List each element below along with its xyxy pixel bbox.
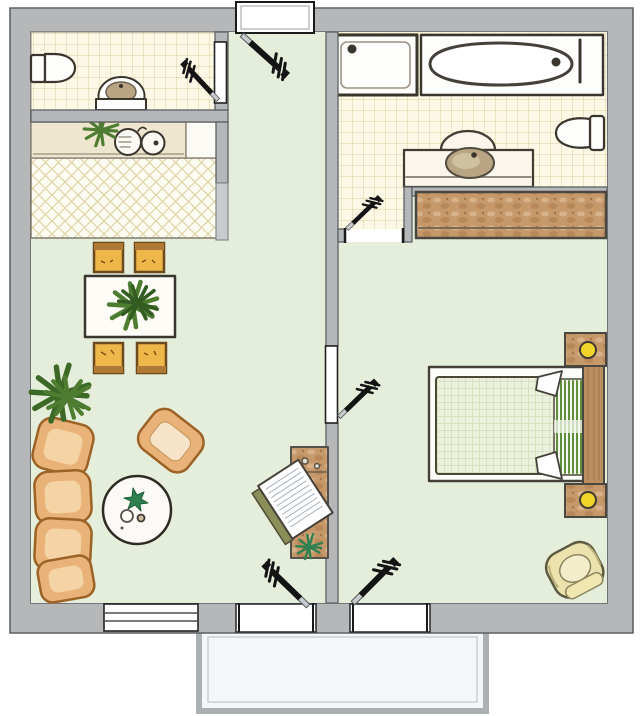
sofa-cushion	[36, 554, 96, 605]
nightstand-bottom	[565, 484, 606, 517]
wall-kitchen-right-upper	[216, 122, 228, 183]
balcony-slab	[199, 628, 486, 711]
wall-center-upper	[326, 32, 338, 346]
double-bed	[429, 364, 604, 484]
wall-kitchen-right-lower	[216, 183, 228, 240]
dining-table	[85, 276, 175, 337]
dining-chair-3	[94, 343, 123, 373]
bedroom-door-panel	[326, 346, 338, 423]
kitchen-fridge	[186, 122, 218, 158]
lamp	[580, 492, 596, 508]
window-living	[104, 604, 198, 631]
nightstand-top	[565, 333, 606, 366]
bathtub-drain	[552, 58, 561, 67]
kitchen	[31, 113, 218, 238]
cup	[121, 510, 133, 522]
dining-chair-4	[137, 343, 166, 373]
wc-toilet	[31, 54, 75, 82]
wall-bath-stub	[404, 187, 412, 242]
bathtub	[421, 35, 603, 95]
pillow-gap	[554, 420, 584, 433]
wardrobe	[416, 192, 606, 238]
shower-drain	[348, 45, 357, 54]
lamp	[580, 342, 596, 358]
sofa	[30, 415, 97, 605]
floor-plan-drawing	[0, 0, 640, 716]
round-coffee-table	[103, 476, 171, 544]
dining-chair-1	[94, 243, 123, 272]
balcony-door-bedroom	[350, 603, 430, 632]
vanity-faucet	[471, 152, 477, 158]
entrance-door-opening	[236, 2, 314, 33]
wall-wc-kitchen	[31, 110, 228, 122]
balcony-door-living	[236, 603, 316, 632]
bathroom-doorway	[344, 228, 404, 243]
floor-plan-page	[0, 0, 640, 716]
kitchen-tile-floor	[31, 158, 218, 238]
wc-door-panel	[215, 42, 227, 103]
dining-chair-2	[135, 243, 164, 272]
sofa-cushion	[34, 470, 93, 525]
balcony	[199, 628, 486, 711]
shower	[334, 35, 417, 95]
drawer-knob	[302, 458, 308, 464]
bathroom-toilet	[556, 116, 604, 150]
small-dish	[138, 515, 145, 522]
drawer-knob	[315, 464, 320, 469]
